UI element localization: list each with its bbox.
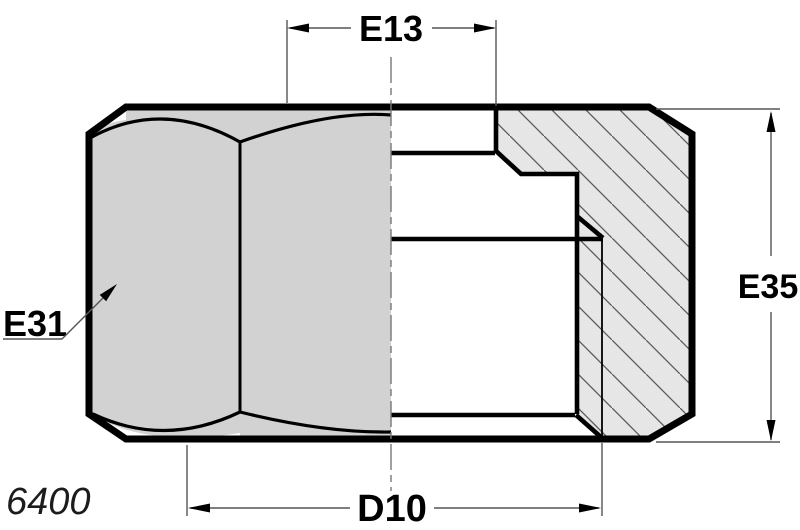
drawing-canvas: E13 E35 D10 E31 6400: [0, 0, 800, 530]
section-half-view: [391, 108, 690, 438]
external-half-view: [89, 107, 391, 440]
section-material-hatch: [496, 110, 690, 437]
part-code-label: 6400: [6, 481, 91, 523]
e13-arrow-right-icon: [474, 24, 496, 33]
dimension-d10: D10: [187, 443, 602, 530]
d10-label: D10: [357, 488, 427, 530]
technical-drawing-page: E13 E35 D10 E31 6400: [0, 0, 800, 530]
e31-label: E31: [3, 303, 67, 344]
e13-arrow-left-icon: [287, 24, 309, 33]
e35-arrow-down-icon: [767, 420, 776, 441]
e35-arrow-up-icon: [767, 111, 776, 132]
e13-label: E13: [359, 8, 423, 49]
d10-arrow-left-icon: [188, 504, 210, 513]
d10-arrow-right-icon: [579, 504, 601, 513]
e35-label: E35: [738, 268, 799, 306]
